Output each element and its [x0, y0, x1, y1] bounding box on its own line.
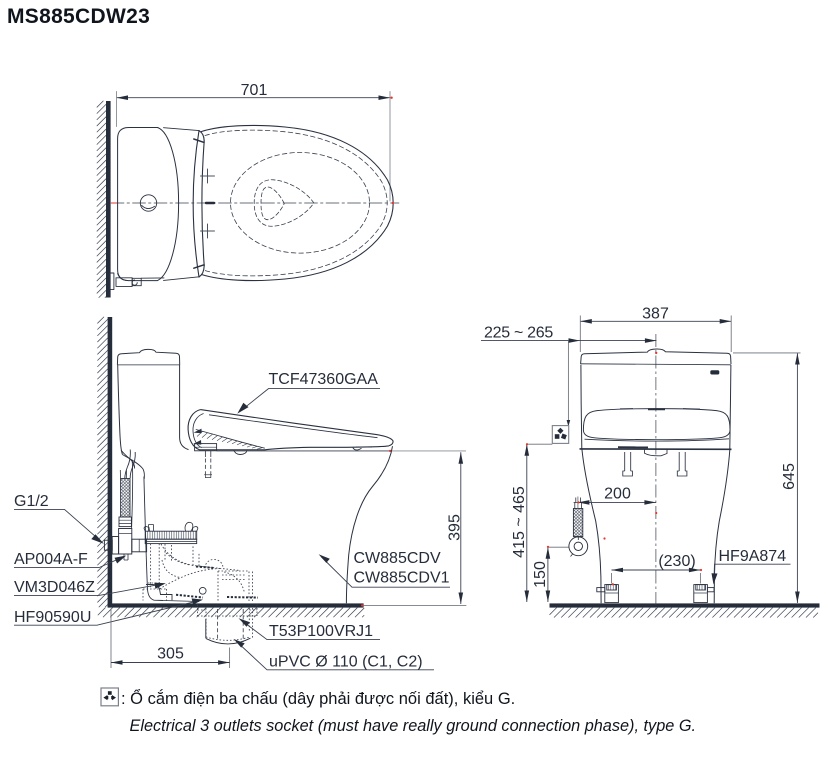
svg-text:VM3D046Z: VM3D046Z: [14, 579, 95, 596]
svg-text:CW885CDV1: CW885CDV1: [354, 570, 450, 587]
svg-text:AP004A-F: AP004A-F: [14, 551, 88, 568]
svg-text:387: 387: [642, 306, 669, 323]
svg-text:150: 150: [532, 561, 549, 588]
svg-text:305: 305: [157, 646, 184, 663]
svg-text:CW885CDV: CW885CDV: [354, 550, 441, 567]
svg-text:225 ~ 265: 225 ~ 265: [484, 325, 553, 342]
svg-text:MS885CDW23: MS885CDW23: [7, 5, 150, 28]
svg-text:: Ổ cắm điện ba chấu (dây phải: : Ổ cắm điện ba chấu (dây phải được nối …: [121, 689, 515, 708]
svg-text:uPVC Ø 110 (C1, C2): uPVC Ø 110 (C1, C2): [269, 654, 423, 671]
svg-text:200: 200: [604, 486, 631, 503]
svg-text:Electrical 3 outlets socket (m: Electrical 3 outlets socket (must have r…: [130, 717, 697, 735]
svg-text:415 ~ 465: 415 ~ 465: [511, 486, 528, 558]
svg-text:TCF47360GAA: TCF47360GAA: [269, 371, 379, 388]
svg-text:395: 395: [447, 514, 464, 541]
svg-text:HF9A874: HF9A874: [719, 548, 787, 565]
svg-text:T53P100VRJ1: T53P100VRJ1: [269, 623, 373, 640]
svg-text:645: 645: [781, 463, 798, 490]
svg-text:HF90590U: HF90590U: [14, 609, 91, 626]
svg-text:(230): (230): [658, 553, 695, 570]
svg-text:701: 701: [241, 82, 268, 99]
svg-text:G1/2: G1/2: [14, 493, 49, 510]
